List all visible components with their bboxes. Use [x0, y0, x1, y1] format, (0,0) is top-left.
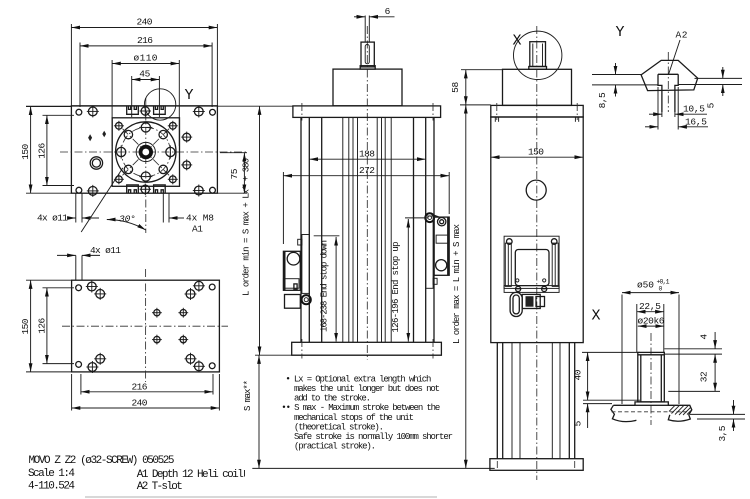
svg-text:add to the stroke.: add to the stroke.	[294, 394, 371, 404]
svg-text:mechanical stops of the unit: mechanical stops of the unit	[294, 413, 414, 423]
svg-text:X: X	[513, 33, 522, 50]
svg-text:A1: A1	[192, 224, 203, 235]
svg-text:16,5: 16,5	[685, 116, 707, 127]
svg-text:5: 5	[573, 420, 584, 426]
svg-text:4-110.524: 4-110.524	[28, 480, 75, 492]
svg-text:ø20k6: ø20k6	[638, 316, 665, 327]
svg-text:(theoretical stroke).: (theoretical stroke).	[294, 422, 384, 432]
svg-text:240: 240	[132, 398, 148, 409]
svg-text:A2 T-slot: A2 T-slot	[137, 481, 183, 493]
svg-text:126: 126	[36, 143, 47, 159]
svg-text:•• S max - Maximum stroke betw: •• S max - Maximum stroke between the	[281, 403, 440, 413]
svg-text:150: 150	[20, 318, 31, 334]
svg-text:+0,1: +0,1	[657, 279, 670, 286]
svg-text:32: 32	[699, 371, 710, 382]
svg-text:L order max = L min + S max: L order max = L min + S max	[452, 224, 462, 344]
svg-text:126: 126	[36, 318, 47, 334]
svg-text:Y: Y	[185, 87, 194, 104]
svg-text:45: 45	[139, 69, 150, 80]
svg-text:5: 5	[706, 102, 717, 108]
svg-text:188: 188	[359, 149, 375, 160]
svg-text:A1 Depth 12 Heli coil: A1 Depth 12 Heli coil	[137, 469, 244, 481]
svg-text:150: 150	[528, 147, 544, 158]
svg-text:30°: 30°	[119, 214, 136, 225]
svg-text:22,5: 22,5	[639, 301, 661, 312]
svg-text:4: 4	[699, 334, 710, 340]
svg-text:S max**: S max**	[243, 380, 253, 411]
svg-text:4x ø11: 4x ø11	[90, 245, 121, 256]
svg-text:4x ø11: 4x ø11	[37, 213, 68, 224]
svg-text:8,5: 8,5	[597, 92, 608, 108]
svg-text:150: 150	[20, 144, 31, 160]
svg-text:X: X	[592, 308, 601, 325]
svg-text:216: 216	[132, 381, 148, 392]
svg-text:40: 40	[573, 369, 584, 380]
svg-text:272: 272	[359, 165, 375, 176]
svg-text:0: 0	[659, 286, 663, 293]
svg-text:58: 58	[450, 82, 461, 93]
svg-text:(practical stroke).: (practical stroke).	[294, 441, 376, 451]
svg-text:ø110: ø110	[134, 53, 158, 64]
svg-text:75: 75	[229, 168, 240, 179]
svg-text:Safe stroke is normally 100mm: Safe stroke is normally 100mm shorter	[294, 432, 453, 442]
svg-text:6: 6	[385, 6, 391, 17]
svg-text:• Lx = Optional extra length w: • Lx = Optional extra length which	[285, 375, 431, 385]
svg-text:4x M8: 4x M8	[186, 213, 214, 224]
svg-text:3,5: 3,5	[717, 425, 728, 441]
svg-text:10,5: 10,5	[683, 104, 705, 115]
svg-text:Scale 1:4: Scale 1:4	[28, 468, 75, 480]
svg-text:Y: Y	[616, 24, 625, 41]
svg-text:makes the unit longer but does: makes the unit longer but does not	[294, 384, 440, 394]
svg-text:168-238 End stop down: 168-238 End stop down	[319, 240, 329, 332]
svg-text:ø50: ø50	[637, 280, 654, 291]
svg-text:216: 216	[137, 35, 153, 46]
svg-text:MOVO Z Z2 (ø32-SCREW) 050525: MOVO Z Z2 (ø32-SCREW) 050525	[29, 455, 175, 467]
svg-text:A2: A2	[676, 30, 688, 41]
svg-text:126-196 End stop up: 126-196 End stop up	[391, 242, 401, 333]
svg-text:L order min = S max + Lx* + 38: L order min = S max + Lx* + 380	[241, 158, 251, 296]
svg-text:240: 240	[137, 17, 153, 28]
